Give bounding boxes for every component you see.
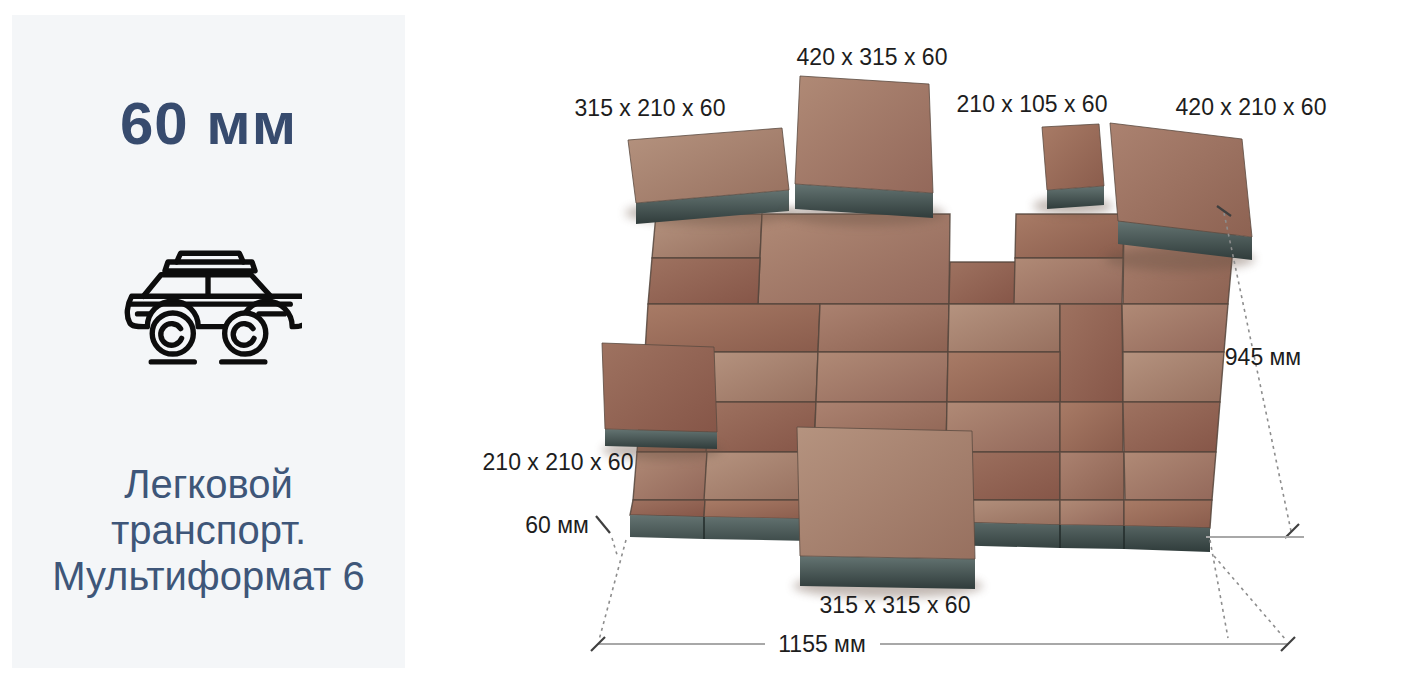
caption-line-1: Легковой (12, 461, 405, 507)
paving-tile (816, 352, 948, 402)
spec-panel: 60 мм (12, 15, 405, 668)
stone-315x315-front (800, 556, 975, 589)
paving-tile (1014, 258, 1123, 304)
paving-tile (1122, 304, 1228, 352)
extension-line-left (599, 540, 626, 640)
paving-tile (1060, 402, 1123, 452)
caption-line-2: транспорт. (12, 507, 405, 553)
paving-tile (1060, 500, 1124, 526)
car-icon-svg (116, 243, 302, 377)
paving-tile (1124, 452, 1216, 500)
stone-315x315-top (797, 427, 975, 559)
paving-tile (704, 500, 812, 519)
paving-tile (708, 352, 818, 402)
paving-tile (648, 258, 760, 304)
stone-210x210-front (605, 429, 717, 449)
paving-tile (630, 500, 705, 517)
transport-caption: Легковой транспорт. Мультиформат 6 (12, 461, 405, 599)
paving-tile (1123, 402, 1220, 452)
depth-extension (1210, 540, 1228, 638)
stone-size-label-210x105: 210 x 105 x 60 (957, 91, 1108, 117)
paving-tile (1123, 352, 1224, 402)
thickness-extension (612, 538, 618, 558)
paving-tile (1060, 452, 1124, 500)
paving-tile (1015, 214, 1124, 258)
paving-tile (1124, 500, 1212, 528)
thickness-tick (596, 516, 610, 533)
stone-size-label-210x210: 210 x 210 x 60 (483, 449, 634, 475)
roofbox-base (165, 262, 255, 271)
paving-tile (949, 262, 1016, 304)
stone-315x210-top (628, 128, 789, 203)
paving-tile (645, 304, 820, 352)
stone-size-label-315x315: 315 x 315 x 60 (820, 592, 971, 618)
stone-210x210-top (602, 343, 717, 432)
stone-420x315-top (795, 76, 933, 193)
stone-size-label-420x315: 420 x 315 x 60 (797, 44, 948, 70)
paving-tile (818, 304, 949, 352)
car-icon (116, 243, 302, 377)
stones-diagram: 420 x 315 x 60 315 x 210 x 60 210 x 105 … (405, 0, 1420, 685)
stone-210x105-top (1042, 124, 1104, 190)
paving-tile (948, 304, 1060, 352)
stone-size-label-315x210: 315 x 210 x 60 (575, 95, 726, 121)
width-dimension-label: 1155 мм (778, 631, 865, 657)
paving-tile (758, 214, 950, 304)
thickness-dimension-label: 60 мм (525, 512, 589, 538)
thickness-title: 60 мм (12, 89, 405, 158)
stone-420x210-top (1110, 123, 1252, 237)
depth-dimension-label: 945 мм (1225, 344, 1301, 370)
paving-tile (1060, 304, 1123, 402)
depth-tick-bottom (1285, 524, 1299, 538)
caption-line-3: Мультиформат 6 (12, 553, 405, 599)
stone-size-label-420x210: 420 x 210 x 60 (1176, 94, 1327, 120)
paving-tile (947, 352, 1060, 402)
extension-line-right (1214, 556, 1286, 640)
